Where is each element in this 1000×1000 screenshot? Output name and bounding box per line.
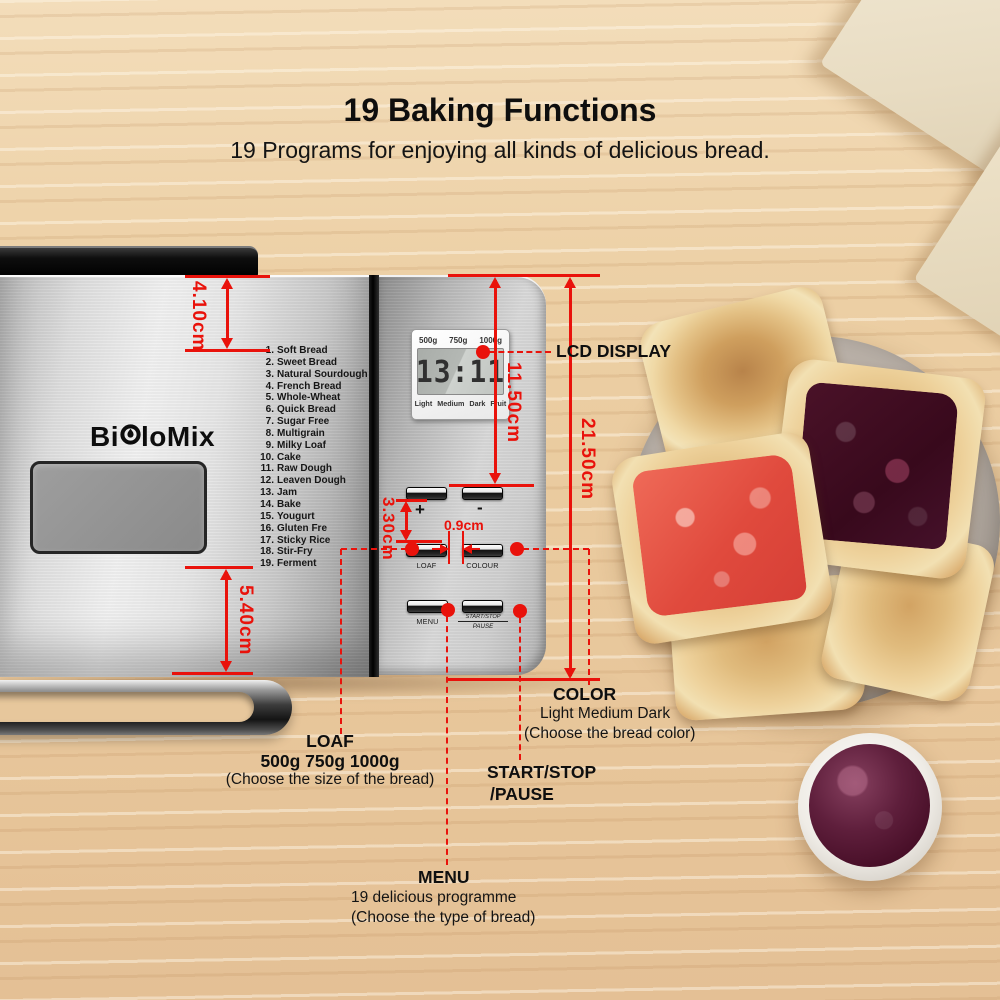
program-item: 6. Quick Bread — [250, 404, 368, 416]
callout-dot-menu — [441, 603, 455, 617]
program-number: 9. — [250, 440, 274, 452]
program-item: 3. Natural Sourdough — [250, 369, 368, 381]
program-number: 5. — [250, 392, 274, 404]
loaf-callout-title: LOAF — [185, 731, 475, 752]
program-name: Milky Loaf — [277, 440, 326, 452]
program-item: 17. Sticky Rice — [250, 535, 368, 547]
program-name: Jam — [277, 487, 297, 499]
program-number: 18. — [250, 546, 274, 558]
minus-sign: - — [477, 498, 483, 518]
program-item: 14. Bake — [250, 499, 368, 511]
program-item: 4. French Bread — [250, 381, 368, 393]
program-item: 13. Jam — [250, 487, 368, 499]
leader-line-loaf-v — [340, 549, 342, 734]
flame-icon — [119, 420, 141, 453]
program-item: 19. Ferment — [250, 558, 368, 570]
dim-line — [226, 281, 229, 345]
callout-dot-start — [513, 604, 527, 618]
program-number: 7. — [250, 416, 274, 428]
arrow-left-icon — [463, 544, 472, 554]
lcd-time: 13:11 — [416, 354, 505, 390]
colour-button-label: COLOUR — [462, 561, 503, 570]
program-item: 11. Raw Dough — [250, 463, 368, 475]
dim-label-row-gap: 3.30cm — [378, 497, 398, 561]
program-number: 15. — [250, 511, 274, 523]
dim-tick — [172, 672, 253, 675]
lcd-display-label: LCD DISPLAY — [556, 341, 671, 362]
leader-line-colour-h — [523, 548, 589, 550]
jam-bowl-content — [809, 744, 930, 867]
leader-line-lcd — [489, 351, 551, 353]
color-callout-options: Light Medium Dark — [540, 705, 670, 723]
program-name: Quick Bread — [277, 404, 336, 416]
program-name: Cake — [277, 452, 301, 464]
dim-tick — [448, 274, 600, 277]
arrow-up-icon — [220, 569, 232, 580]
product-infographic: Bi loMix 1. Soft Bread 2. Sweet Bread 3.… — [0, 0, 1000, 1000]
arrow-up-icon — [489, 277, 501, 288]
page-title: 19 Baking Functions — [0, 92, 1000, 129]
program-item: 16. Gluten Fre — [250, 523, 368, 535]
program-name: Yougurt — [277, 511, 315, 523]
program-item: 8. Multigrain — [250, 428, 368, 440]
program-name: Sticky Rice — [277, 535, 330, 547]
viewing-window — [30, 461, 207, 554]
dim-label-lcd: 11.50cm — [502, 362, 524, 443]
start-stop-button-label: START/STOP PAUSE — [458, 614, 508, 630]
program-name: Sugar Free — [277, 416, 329, 428]
dim-line — [569, 280, 572, 676]
start-stop-text: START/STOP — [458, 614, 508, 622]
lid-handle — [0, 246, 258, 277]
menu-button-label: MENU — [407, 617, 448, 626]
loaf-callout-options: 500g 750g 1000g — [185, 751, 475, 772]
arrow-down-icon — [220, 661, 232, 672]
arrow-down-icon — [489, 473, 501, 484]
program-item: 12. Leaven Dough — [250, 475, 368, 487]
program-name: Raw Dough — [277, 463, 332, 475]
program-item: 7. Sugar Free — [250, 416, 368, 428]
start-stop-button — [462, 600, 503, 613]
program-number: 19. — [250, 558, 274, 570]
menu-callout-hint: (Choose the type of bread) — [351, 909, 535, 927]
color-callout-title: COLOR — [553, 684, 616, 705]
dim-line — [225, 572, 228, 667]
program-number: 16. — [250, 523, 274, 535]
program-number: 6. — [250, 404, 274, 416]
program-number: 17. — [250, 535, 274, 547]
program-number: 10. — [250, 452, 274, 464]
brand-logo: Bi loMix — [90, 420, 215, 453]
program-item: 2. Sweet Bread — [250, 357, 368, 369]
program-number: 14. — [250, 499, 274, 511]
program-name: Whole-Wheat — [277, 392, 340, 404]
arrow-down-icon — [221, 338, 233, 349]
dim-tick — [185, 566, 253, 569]
color-callout-hint: (Choose the bread color) — [524, 725, 695, 743]
callout-dot-colour — [510, 542, 524, 556]
brand-logo-left: Bi — [90, 421, 119, 453]
lcd-mode: Light — [415, 399, 433, 408]
lcd-weight: 750g — [449, 336, 467, 345]
carry-handle-gap — [0, 692, 254, 722]
leader-line-start — [519, 617, 521, 760]
program-number: 11. — [250, 463, 274, 475]
dim-label-handle: 4.10cm — [187, 281, 209, 351]
brand-logo-right: loMix — [141, 421, 215, 453]
program-list: 1. Soft Bread 2. Sweet Bread 3. Natural … — [250, 345, 368, 570]
callout-dot-lcd — [476, 345, 490, 359]
arrow-up-icon — [221, 278, 233, 289]
page-subtitle: 19 Programs for enjoying all kinds of de… — [0, 137, 1000, 164]
program-name: Multigrain — [277, 428, 325, 440]
program-number: 13. — [250, 487, 274, 499]
program-name: Natural Sourdough — [277, 369, 368, 381]
jam-bowl — [798, 733, 942, 881]
loaf-callout-hint: (Choose the size of the bread) — [185, 771, 475, 789]
dim-tick — [448, 678, 600, 681]
leader-line-colour-v — [588, 549, 590, 685]
arrow-up-icon — [564, 277, 576, 288]
dim-label-panel: 21.50cm — [576, 418, 598, 500]
program-name: Sweet Bread — [277, 357, 337, 369]
program-name: Bake — [277, 499, 301, 511]
program-name: French Bread — [277, 381, 341, 393]
program-number: 2. — [250, 357, 274, 369]
dim-line — [494, 280, 497, 478]
arrow-right-icon — [440, 544, 449, 554]
menu-callout-options: 19 delicious programme — [351, 889, 516, 907]
lcd-weight: 1000g — [479, 336, 502, 345]
dim-label-bottom: 5.40cm — [234, 585, 256, 655]
program-item: 9. Milky Loaf — [250, 440, 368, 452]
program-name: Gluten Fre — [277, 523, 327, 535]
start-callout-title: START/STOP — [487, 762, 596, 783]
loaf-button-label: LOAF — [406, 561, 447, 570]
plus-sign: + — [415, 500, 425, 520]
leader-line-loaf-h — [341, 548, 407, 550]
program-number: 4. — [250, 381, 274, 393]
lcd-mode: Dark — [469, 399, 485, 408]
program-item: 10. Cake — [250, 452, 368, 464]
pause-text: PAUSE — [458, 623, 508, 630]
callout-dot-loaf — [405, 542, 419, 556]
program-number: 12. — [250, 475, 274, 487]
lcd-screen: 13:11 — [417, 348, 504, 395]
strawberry-jam — [631, 453, 808, 617]
machine-divider — [369, 275, 379, 677]
program-name: Stir-Fry — [277, 546, 313, 558]
program-number: 3. — [250, 369, 274, 381]
program-item: 15. Yougurt — [250, 511, 368, 523]
arrow-up-icon — [400, 501, 412, 512]
program-name: Ferment — [277, 558, 316, 570]
arrow-down-icon — [400, 530, 412, 541]
program-name: Soft Bread — [277, 345, 328, 357]
dim-tick — [449, 484, 534, 487]
start-callout-title2: /PAUSE — [490, 784, 554, 805]
carry-handle — [0, 680, 292, 735]
program-item: 5. Whole-Wheat — [250, 392, 368, 404]
program-number: 8. — [250, 428, 274, 440]
menu-callout-title: MENU — [418, 867, 470, 888]
program-name: Leaven Dough — [277, 475, 346, 487]
lcd-weight: 500g — [419, 336, 437, 345]
lcd-mode: Medium — [437, 399, 464, 408]
toast-strawberry-jam — [609, 430, 836, 647]
